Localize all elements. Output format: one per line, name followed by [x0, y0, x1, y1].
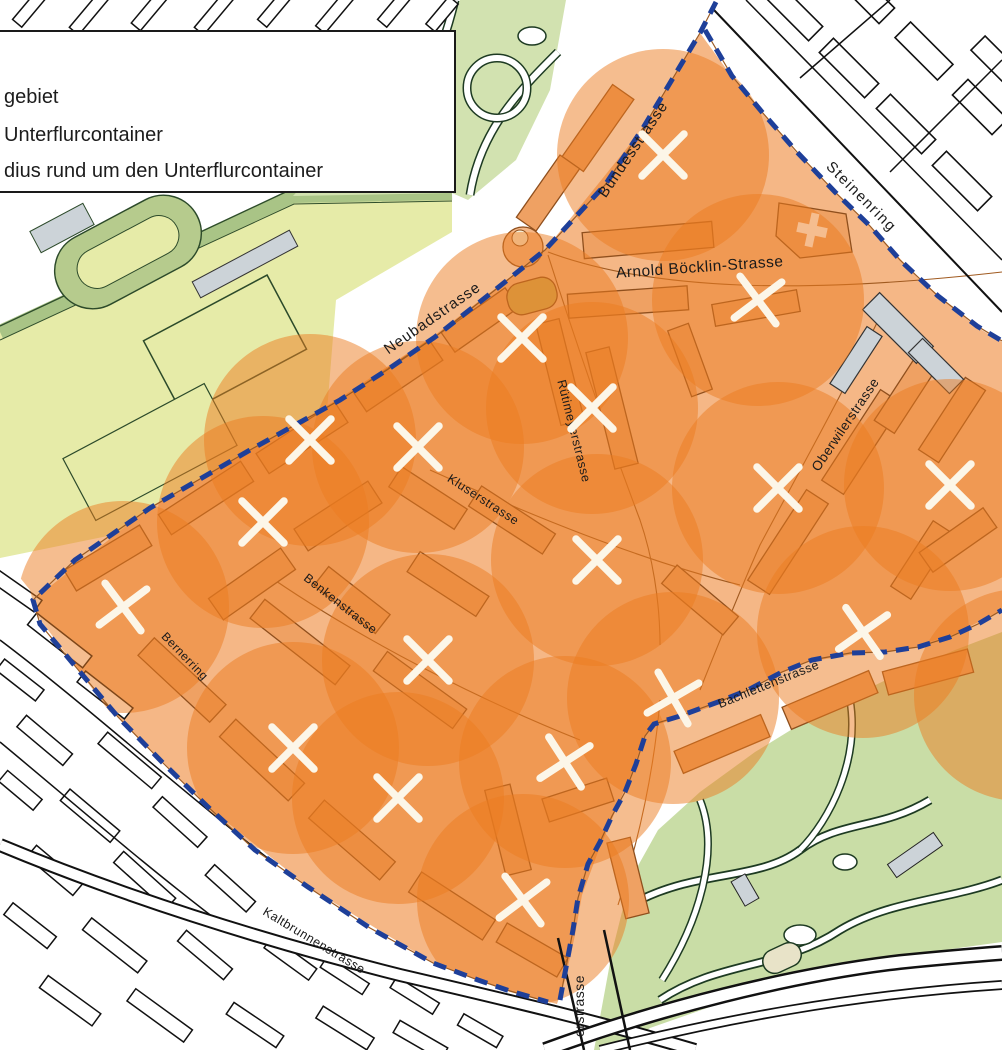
street-label-erstrasse-partial: erstrasse	[571, 975, 587, 1037]
legend-item-radius: dius rund um den Unterflurcontainer	[4, 159, 323, 183]
map-stage: BundesstrasseSteinenringArnold Böcklin-S…	[0, 0, 1002, 1050]
legend-box: gebiet Unterflurcontainer dius rund um d…	[0, 30, 456, 193]
legend-item-underground-container: Unterflurcontainer	[4, 123, 163, 147]
legend-item-pilot-area: gebiet	[4, 85, 59, 109]
